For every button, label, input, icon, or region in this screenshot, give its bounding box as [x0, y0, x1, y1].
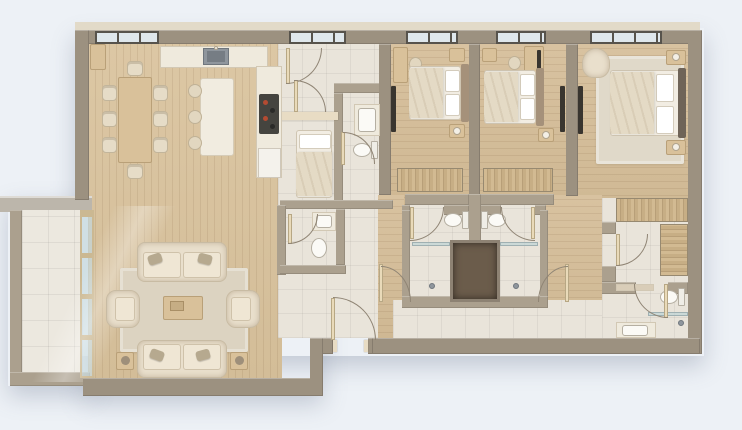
- wall-hall-bedroom1: [379, 44, 391, 195]
- closet-wall-upper: [602, 222, 616, 234]
- wall-bedroom2-master: [566, 44, 578, 196]
- bar-stool: [188, 136, 202, 150]
- dining-chair: [153, 111, 168, 127]
- window-living: [95, 31, 159, 44]
- dining-chair: [102, 85, 117, 101]
- master-pillow: [656, 106, 674, 134]
- bedroom2-wardrobe: [483, 168, 553, 192]
- bedroom1-bottom-wall: [405, 194, 469, 205]
- bedroom2-pillow: [520, 98, 535, 120]
- dining-chair: [127, 61, 143, 76]
- balcony-left-wall: [10, 210, 22, 386]
- ensuite-right-shower-head: [513, 283, 519, 289]
- balcony-bottom-wall: [10, 372, 90, 386]
- wall-bedroom1-bedroom2: [469, 44, 480, 195]
- left-wall: [75, 30, 89, 200]
- ensuite-left-toilet: [444, 213, 462, 227]
- closet-side-wardrobe: [660, 224, 688, 276]
- bedroom1-lamp: [453, 127, 461, 135]
- guest-wc-right-wall: [336, 209, 345, 265]
- cooktop: [259, 94, 279, 134]
- burner-icon: [270, 108, 275, 113]
- ensuite-center-wall: [469, 194, 481, 246]
- bedroom1-tv-panel: [391, 86, 396, 132]
- bedroom2-pillow: [520, 74, 535, 96]
- balcony-floor: [22, 210, 80, 373]
- master-vanity-basin: [622, 325, 648, 336]
- dining-chair: [102, 111, 117, 127]
- bedroom1-headboard: [461, 64, 469, 122]
- bar-stool: [188, 110, 202, 124]
- right-wall: [688, 30, 702, 354]
- shower-niche: [450, 240, 500, 302]
- side-table-decor: [121, 356, 130, 365]
- closet-wall-lower: [602, 266, 616, 282]
- master-toilet-tank: [678, 288, 685, 306]
- utility-bed-pillow: [299, 134, 331, 149]
- burner-icon: [263, 116, 268, 121]
- bedroom1-pillow: [445, 94, 460, 116]
- bedroom2-lamp: [542, 131, 550, 139]
- ensuite-right-shower-glass: [500, 242, 538, 246]
- armchair-cushion: [231, 297, 251, 321]
- master-headboard: [678, 68, 686, 138]
- closet-wardrobe-run: [616, 198, 688, 222]
- guest-wc-bottom-wall: [280, 265, 346, 274]
- window-bedroom1: [406, 31, 458, 44]
- bar-stool: [188, 84, 202, 98]
- balcony-glass-sliding-wall: [80, 210, 94, 378]
- bedroom1-desk: [393, 47, 408, 83]
- coffee-table-books: [170, 301, 184, 311]
- dining-chair: [153, 137, 168, 153]
- kitchen-island: [200, 78, 234, 156]
- entry-jamb-left: [333, 340, 337, 352]
- bedroom1-wardrobe: [397, 168, 463, 192]
- ensuite-right-toilet-tank: [481, 211, 488, 229]
- bottom-jog-wall: [310, 338, 323, 396]
- bedroom2-headboard: [536, 68, 544, 126]
- bedroom1-nightstand-top: [449, 48, 465, 62]
- master-armchair: [582, 48, 610, 78]
- bedroom1-pillow: [445, 70, 460, 92]
- ensuite-left-toilet-tank: [462, 211, 469, 229]
- bath-top-washbasin: [358, 108, 376, 132]
- kitchen-sink-basin: [207, 51, 225, 62]
- master-shower-head: [678, 320, 684, 326]
- guest-wc-basin: [316, 215, 332, 228]
- entry-jamb-right: [364, 340, 368, 352]
- burner-icon: [270, 124, 275, 129]
- utility-bed-blanket: [296, 152, 332, 196]
- master-tv-panel: [578, 86, 583, 134]
- entry-wall-left: [323, 338, 333, 354]
- dining-table: [118, 77, 152, 163]
- window-bedroom2: [496, 31, 546, 44]
- guest-wc-toilet: [311, 238, 327, 258]
- burner-icon: [263, 100, 268, 105]
- floor-plan-render: [0, 0, 742, 430]
- master-blanket: [610, 72, 654, 134]
- dining-chair: [102, 137, 117, 153]
- kitchen-base-cabinet: [258, 148, 281, 178]
- bedroom2-blanket: [484, 72, 518, 122]
- window-hall: [289, 31, 346, 44]
- side-table-decor: [235, 356, 244, 365]
- ensuite-left-shower-glass: [412, 242, 450, 246]
- kitchen-faucet: [214, 46, 218, 50]
- window-master: [590, 31, 662, 44]
- ensuite-left-shower-head: [429, 283, 435, 289]
- dining-chair: [127, 164, 143, 179]
- utility-top-wall: [280, 112, 338, 120]
- master-pillow: [656, 74, 674, 102]
- bedroom2-nightstand-top: [482, 48, 497, 62]
- corner-cabinet: [90, 44, 106, 70]
- mid-cross-wall: [280, 200, 393, 209]
- master-lamp-top: [672, 53, 680, 61]
- bedroom2-tv-panel: [560, 86, 565, 132]
- armchair-cushion: [115, 297, 135, 321]
- bottom-wall: [373, 338, 700, 354]
- bedroom1-blanket: [409, 68, 443, 118]
- master-lamp-bottom: [672, 143, 680, 151]
- bedroom2-desk-chair: [508, 56, 521, 70]
- living-bottom-wall: [83, 378, 323, 396]
- dining-chair: [153, 85, 168, 101]
- bedroom2-bottom-wall: [480, 194, 554, 205]
